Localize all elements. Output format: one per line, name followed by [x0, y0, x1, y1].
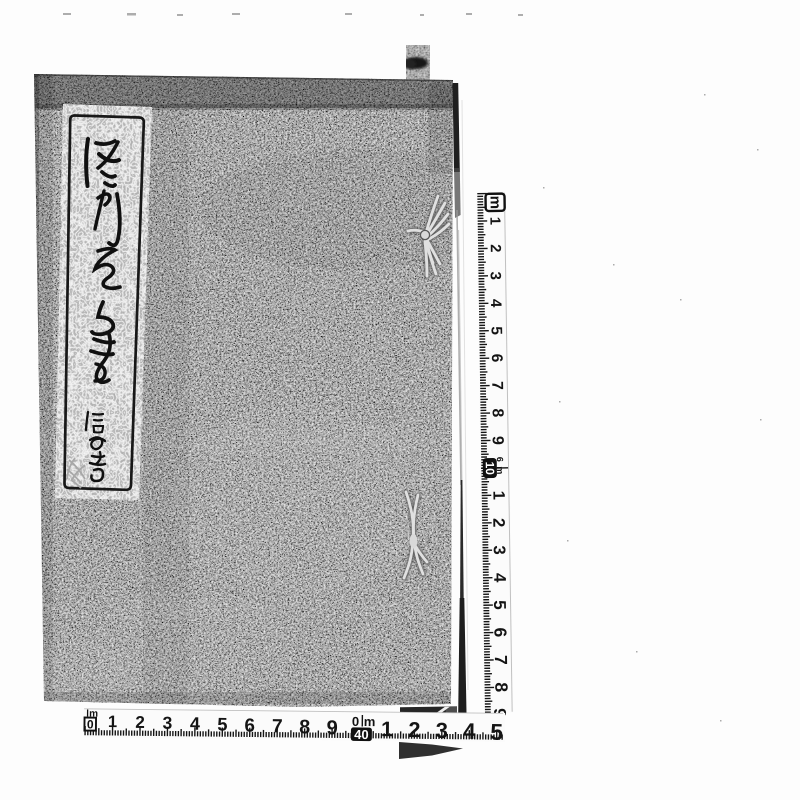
svg-text:3: 3: [487, 271, 504, 280]
svg-text:1: 1: [486, 217, 502, 225]
svg-text:3: 3: [436, 718, 449, 743]
svg-text:3: 3: [490, 545, 509, 555]
svg-text:5: 5: [487, 326, 504, 335]
svg-text:1: 1: [108, 712, 117, 731]
svg-text:2: 2: [135, 713, 145, 732]
svg-text:2: 2: [489, 518, 508, 528]
svg-text:2: 2: [487, 244, 503, 252]
svg-text:3: 3: [163, 713, 173, 733]
svg-text:2: 2: [408, 717, 420, 742]
svg-text:4: 4: [490, 573, 509, 583]
svg-text:5: 5: [490, 719, 503, 745]
svg-text:9: 9: [326, 717, 337, 739]
svg-text:6: 6: [495, 457, 505, 462]
svg-text:6: 6: [490, 627, 510, 637]
svg-text:7: 7: [272, 716, 283, 737]
svg-text:4: 4: [190, 714, 200, 734]
svg-text:0: 0: [87, 717, 94, 731]
svg-text:5: 5: [217, 714, 227, 735]
svg-text:4: 4: [487, 299, 504, 308]
svg-text:5: 5: [490, 600, 510, 610]
svg-text:8: 8: [299, 716, 310, 738]
svg-text:1: 1: [381, 718, 393, 741]
svg-text:6: 6: [244, 716, 255, 737]
svg-text:7: 7: [488, 381, 505, 390]
svg-text:9: 9: [489, 436, 507, 445]
svg-text:1: 1: [489, 490, 507, 499]
svg-text:10: 10: [483, 461, 497, 475]
svg-text:m: m: [487, 196, 504, 210]
svg-text:m: m: [495, 466, 505, 474]
svg-text:4: 4: [463, 719, 476, 744]
svg-text:8: 8: [489, 408, 506, 417]
svg-text:6: 6: [488, 354, 505, 363]
svg-text:40: 40: [354, 727, 369, 742]
svg-text:7: 7: [491, 655, 511, 665]
svg-text:8: 8: [491, 682, 511, 692]
